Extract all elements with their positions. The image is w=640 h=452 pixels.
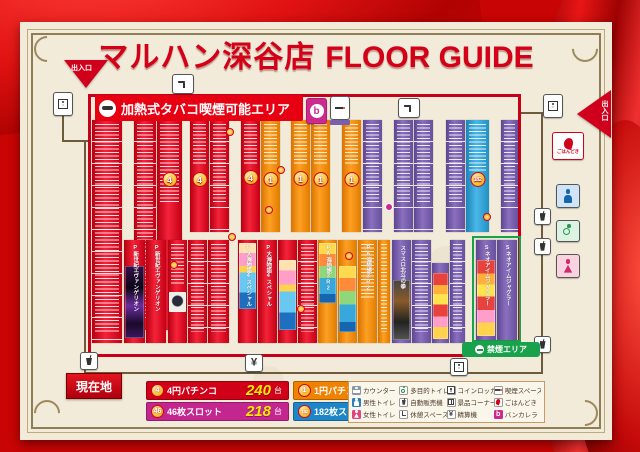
machine-art-marine [339,266,356,332]
toilet-male-icon [561,189,575,203]
legend-count-label: 4円パチンコ [167,384,217,397]
machine-name-rows [244,124,257,164]
machine-column: Sネオアイムジャグラー [497,240,517,340]
toilet-female-icon [561,259,575,273]
machine-column [414,120,433,232]
price-badge: 46 [151,405,164,418]
legend-count-unit: 台 [274,385,282,396]
aisle-marker [277,166,285,174]
machine-column: P新世紀エヴァンゲリオン [146,240,166,343]
machine-name-rows [213,124,226,204]
machine-name-rows [381,244,387,332]
machine-column [210,120,229,232]
price-badge: 4 [162,172,177,187]
machine-art-mermaid [279,260,296,330]
faucet-icon [177,78,189,90]
machine-name-rows [504,124,515,204]
frame-ornament [29,395,66,432]
cup-icon [83,355,95,367]
facility-legend-item: 精算機 [447,408,494,420]
machine-column: 1 [291,120,310,232]
machine-name: スマスロ北斗の拳 [399,245,405,289]
entrance-right: 出入口 [577,90,615,138]
facility-legend-item: 自動販売機 [399,396,446,408]
machine-column [446,120,465,232]
machine-name: Sネオアイムジャグラー [504,245,510,306]
facility-legend-item: コインロッカー [447,384,494,396]
smoking-icon [334,102,346,114]
faucet-icon [403,102,415,114]
prize-icon [447,398,456,407]
facility-legend-label: 精算機 [458,409,478,419]
price-badge: 1 [263,172,278,187]
store-name: マルハン深谷店 [98,41,315,74]
aisle-marker [297,305,305,313]
machine-name-rows [301,244,314,332]
gohandoki-label: ごはんどき [557,150,579,155]
locker-box [450,358,468,376]
bancarella-icon [494,410,503,419]
machine-column [363,120,382,232]
machine-name-rows [193,124,206,164]
facility-legend-panel: カウンター男性トイレ女性トイレ多目的トイレ自動販売機休憩スペースコインロッカー景… [348,381,545,423]
facility-legend-item: 女性トイレ [352,408,399,420]
bancarella-logo-icon: b [310,104,324,118]
machine-column [394,120,413,232]
aisle-marker [265,206,273,214]
corridor-line [521,112,543,114]
machine-column: PA海物語3R2 [318,240,337,343]
facility-legend-item: ごはんどき [494,396,541,408]
machine-column: 1 [261,120,280,232]
locker-box [53,92,73,116]
machine-name-rows [366,124,379,204]
frame-ornament [567,395,604,432]
current-location-badge: 現在地 [66,373,122,399]
bancarella-glyph [494,410,502,418]
rest-icon [399,410,408,419]
machine-name: PA海物語3R2 [325,245,331,292]
machine-name-rows [449,124,462,204]
entrance-label: 出入口 [599,100,609,121]
machine-column [298,240,317,343]
machine-art-juggler [433,273,448,339]
machine-name-rows [211,244,226,332]
cup-box [534,238,551,255]
corridor-line [62,114,64,142]
machine-column: P大海物語4スペシャル [238,240,257,343]
machine-name: P新世紀エヴァンゲリオン [132,245,138,312]
toilet-multi-icon [561,224,575,238]
price-badge: 1 [298,384,311,397]
legend-count-unit: 台 [274,406,282,417]
machine-name: PA海物語3R2 [365,245,371,292]
locker-box [543,94,563,118]
gohandoki-logo-icon [562,137,574,150]
cup-box [80,352,98,370]
machine-name-rows [95,124,119,332]
rest-glyph [400,410,408,418]
price-badge: 4 [243,170,258,185]
aisle-marker [385,203,393,211]
machine-column [450,240,465,343]
machine-column [432,263,449,343]
faucet-box [398,98,420,118]
machine-column: 4 [190,120,209,232]
price-badge: 1 [344,172,359,187]
toilet-male-icon [352,398,361,407]
machine-column: 4 [241,120,260,232]
machine-column: P新世紀エヴァンゲリオン [124,240,145,343]
machine-art-moon [169,292,186,312]
facility-legend-label: コインロッカー [458,385,494,395]
counter-icon [352,386,361,395]
machine-name-rows [417,124,430,204]
gohandoki-icon [494,398,503,407]
toilet-female-icon [352,410,361,419]
prize-glyph [447,398,455,406]
smoking-icon [494,386,503,395]
toilet-multi-box [556,220,580,242]
locker-icon [453,361,465,373]
machine-column: スマスロ北斗の拳 [392,240,411,343]
page-title: マルハン深谷店FLOOR GUIDE [20,32,612,76]
machine-name: P大海物語4スペシャル [265,245,271,307]
vending-glyph [400,398,408,406]
machine-column [208,240,229,343]
heated-tobacco-icon [99,100,116,117]
price-badge: 4 [192,172,207,187]
facility-legend-label: ごはんどき [505,397,537,407]
no-smoking-icon [475,345,484,354]
facility-legend-label: 多目的トイレ [410,385,446,395]
smoking-ok-banner: 加熱式タバコ喫煙可能エリア [95,95,303,121]
machine-name-rows [160,124,179,204]
facility-legend-item: 男性トイレ [352,396,399,408]
facility-legend-item: カウンター [352,384,399,396]
legend-count-4: 44円パチンコ240台 [146,381,289,400]
machine-name-rows [397,124,410,204]
faucet-box [172,74,194,94]
price-badge: 182 [298,405,311,418]
locker-icon [447,386,456,395]
cup-box [534,208,551,225]
facility-legend-label: 休憩スペース [410,409,446,419]
price-badge: 4 [151,384,164,397]
facility-legend-label: カウンター [363,385,396,395]
facility-legend-label: 自動販売機 [410,397,443,407]
machine-column: P大海物語4スペシャル [258,240,277,343]
machine-name-rows [294,124,307,164]
guide-title: FLOOR GUIDE [325,41,533,74]
locker-icon [57,98,69,110]
smoking-glyph [494,386,502,394]
gohandoki-glyph [494,398,502,406]
machine-name-rows [453,244,462,332]
smoking-box [330,96,350,120]
machine-name: P大海物語4スペシャル [245,245,251,307]
price-badge: 1 [313,172,328,187]
facility-legend-item: 景品コーナー [447,396,494,408]
checkout-glyph [447,410,455,418]
machine-column [412,240,431,343]
legend-count-value: 240 [246,383,271,398]
checkout-icon [447,410,456,419]
machine-column [92,120,122,343]
cup-icon [537,241,549,253]
machine-name-rows [314,124,327,164]
machine-column [188,240,207,343]
machine-column: Sネオアイムジャグラー [476,240,496,340]
toilet-female-box [556,254,580,278]
banner-label: 加熱式タバコ喫煙可能エリア [121,99,290,118]
machine-name: Sネオアイムジャグラー [483,245,489,306]
price-badge: 1 [293,171,308,186]
machine-column [378,240,390,343]
vending-icon [399,398,408,407]
facility-legend-item: バンカレラ [494,408,541,420]
corridor-line [84,372,543,374]
floor-guide-poster: マルハン深谷店FLOOR GUIDE 出入口 出入口 加熱式タバコ喫煙可能エリア… [0,0,640,452]
machine-name-rows [469,124,486,172]
machine-name-rows [191,244,204,332]
machine-column: 1 [311,120,330,232]
aisle-marker [226,128,234,136]
machine-art-hokuto [393,280,410,340]
toilet-multi-glyph [400,386,408,394]
facility-legend-label: 男性トイレ [363,397,396,407]
facility-legend-item: 喫煙スペース [494,384,541,396]
corridor-line [84,140,86,372]
toilet-male-glyph [353,398,361,406]
legend-count-46: 4646枚スロット218台 [146,402,289,421]
facility-legend-label: バンカレラ [505,409,538,419]
entrance-left: 出入口 [64,60,108,90]
nonsmoking-area-label: 禁煙エリア [462,342,540,357]
aisle-marker [228,233,236,241]
machine-name-rows [415,244,428,332]
machine-column: 1 [342,120,361,232]
machine-name-rows [264,124,277,164]
cup-icon [537,211,549,223]
facility-legend-label: 喫煙スペース [505,385,541,395]
toilet-male-box [556,184,580,208]
aisle-marker [170,261,178,269]
machine-column: PA海物語3R2 [358,240,377,343]
aisle-marker [345,252,353,260]
locker-glyph [447,386,455,394]
machine-name: P新世紀エヴァンゲリオン [153,245,159,312]
machine-column [278,240,297,343]
legend-count-label: 46枚スロット [167,405,222,418]
facility-legend-label: 女性トイレ [363,409,396,419]
machine-column [501,120,518,232]
yen-box [245,354,263,372]
toilet-female-glyph [353,410,361,418]
toilet-multi-icon [399,386,408,395]
entrance-label: 出入口 [71,63,92,73]
facility-legend-item: 休憩スペース [399,408,446,420]
legend-count-value: 218 [246,404,271,419]
bancarella-box: b [306,98,327,124]
facility-legend-item: 多目的トイレ [399,384,446,396]
locker-icon [547,100,559,112]
nonsmoking-text: 禁煙エリア [487,344,527,355]
counter-glyph [353,386,361,394]
machine-column [168,240,187,343]
facility-legend-label: 景品コーナー [458,397,494,407]
machine-name-rows [345,124,358,164]
price-badge: 182 [470,172,485,187]
aisle-marker [483,213,491,221]
yen-icon [248,357,260,369]
gohandoki-box: ごはんどき [552,132,584,160]
